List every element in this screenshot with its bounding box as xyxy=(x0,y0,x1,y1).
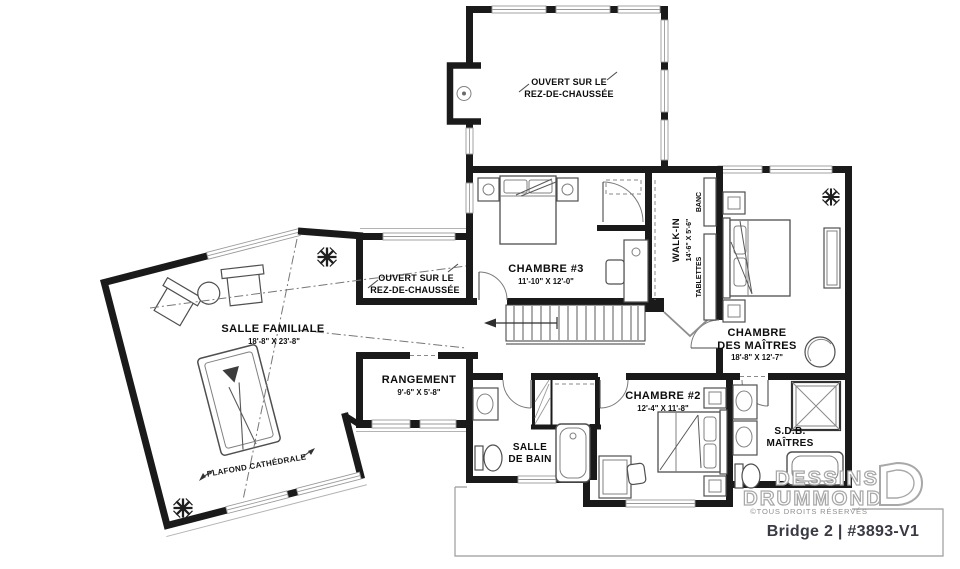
bed-symbol xyxy=(723,218,790,298)
label-tablettes: TABLETTES xyxy=(696,256,703,297)
floor-plan-page: OUVERT SUR LE REZ-DE-CHAUSSÉE OUVERT SUR… xyxy=(0,0,960,569)
dims-salle-familiale: 18'-8" X 23'-8" xyxy=(248,337,300,346)
label-salle-de-bain-2: DE BAIN xyxy=(508,454,551,465)
brand-d-mark-icon xyxy=(880,463,922,505)
bed-symbol xyxy=(658,410,727,474)
family-room xyxy=(100,228,367,536)
shower-symbol xyxy=(792,382,840,430)
plan-title: Bridge 2 | #3893-V1 xyxy=(767,523,919,540)
dims-master: 18'-8" X 12'-7" xyxy=(731,353,783,362)
brand-logo: DESSINS DRUMMOND ©TOUS DROITS RÉSERVÉS B… xyxy=(743,463,922,540)
label-ouvert-top-2: REZ-DE-CHAUSSÉE xyxy=(524,89,614,99)
label-salle-familiale: SALLE FAMILIALE xyxy=(221,323,324,335)
label-rangement: RANGEMENT xyxy=(382,374,457,386)
label-banc: BANC xyxy=(696,192,703,212)
label-walkin: WALK-IN xyxy=(671,218,682,262)
label-salle-de-bain-1: SALLE xyxy=(513,442,547,453)
label-master-1: CHAMBRE xyxy=(727,327,786,339)
label-chambre3: CHAMBRE #3 xyxy=(508,263,584,275)
label-chambre2: CHAMBRE #2 xyxy=(625,390,701,402)
bathtub-symbol xyxy=(556,424,590,482)
label-master-2: DES MAÎTRES xyxy=(717,339,797,352)
label-ouvert-mid-2: REZ-DE-CHAUSSÉE xyxy=(370,285,460,295)
staircase xyxy=(484,305,645,344)
toilet-symbol xyxy=(475,445,502,471)
toilet-symbol xyxy=(735,464,760,488)
chair-symbol xyxy=(805,337,835,367)
fireplace-symbol xyxy=(450,66,481,122)
brand-rights: ©TOUS DROITS RÉSERVÉS xyxy=(750,507,867,516)
label-sdb-maitres-1: S.D.B. xyxy=(774,426,805,437)
dims-walkin: 14'-6" X 5'-6" xyxy=(686,219,693,262)
label-sdb-maitres-2: MAÎTRES xyxy=(766,436,813,449)
dims-rangement: 9'-6" X 5'-8" xyxy=(397,388,440,397)
dims-chambre3: 11'-10" X 12'-0" xyxy=(518,277,574,286)
dresser-symbol xyxy=(824,228,840,288)
dims-chambre2: 12'-4" X 11'-8" xyxy=(637,404,689,413)
plant-icon xyxy=(823,189,840,206)
desk-symbol xyxy=(599,456,646,498)
floor-plan-canvas: OUVERT SUR LE REZ-DE-CHAUSSÉE OUVERT SUR… xyxy=(0,0,960,569)
plant-icon xyxy=(318,248,337,267)
label-ouvert-top-1: OUVERT SUR LE xyxy=(531,77,607,87)
desk-symbol xyxy=(606,240,648,302)
label-ouvert-mid-1: OUVERT SUR LE xyxy=(378,273,454,283)
bed-symbol xyxy=(500,176,556,244)
